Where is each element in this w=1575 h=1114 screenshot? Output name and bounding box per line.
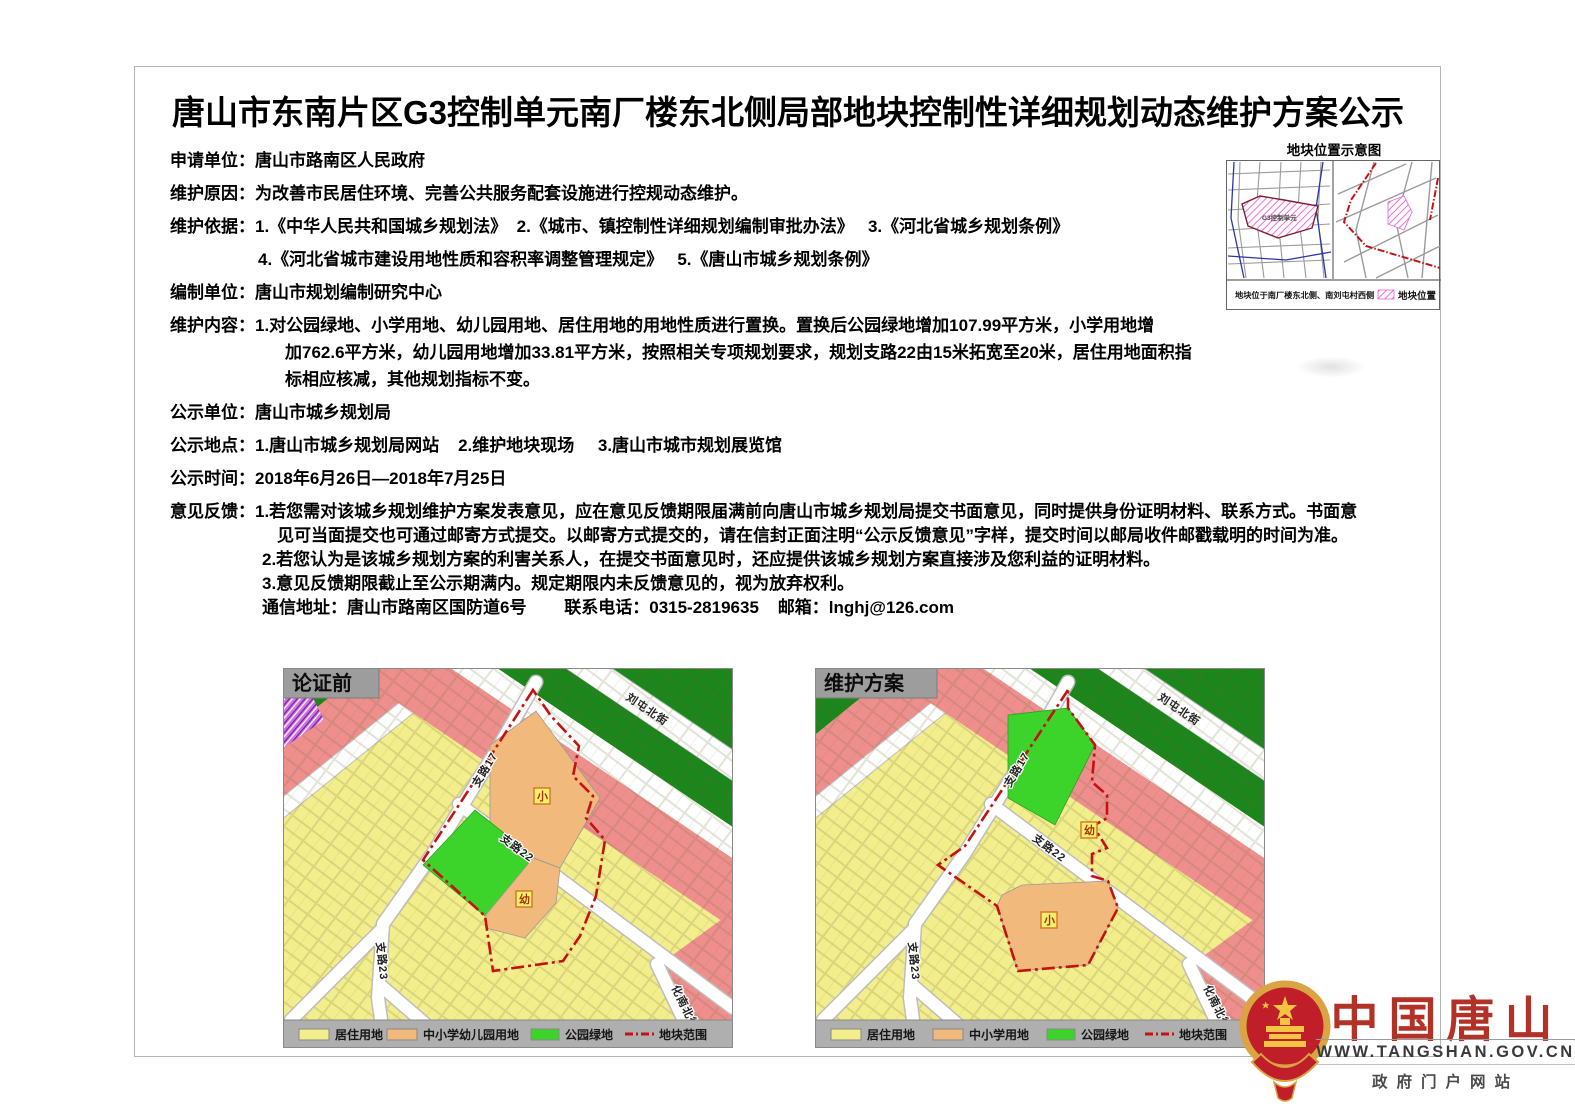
map-title-box: 论证前 (283, 668, 379, 698)
legend-park: 公园绿地 (565, 1027, 613, 1042)
field-value: 唐山市路南区人民政府 (255, 151, 425, 170)
scan-smudge (1296, 356, 1366, 378)
field-value: 3.意见反馈期限截止至公示期满内。规定期限内未反馈意见的，视为放弃权利。 (262, 574, 854, 593)
field-label: 公示单位： (170, 403, 255, 422)
inset-area-label: G3控制单元 (1262, 213, 1297, 222)
notice-line: 2.若您认为是该城乡规划方案的利害关系人，在提交书面意见时，还应提供该城乡规划方… (170, 549, 1440, 571)
map-legend: 居住用地 中小学幼儿园用地 公园绿地 地块范围 (283, 1020, 733, 1048)
public-notice-page: 唐山市东南片区G3控制单元南厂楼东北侧局部地块控制性详细规划动态维护方案公示 申… (0, 0, 1575, 1114)
notice-line: 3.意见反馈期限截止至公示期满内。规定期限内未反馈意见的，视为放弃权利。 (170, 573, 1440, 595)
legend-school: 中小学幼儿园用地 (423, 1027, 519, 1042)
field-label: 编制单位： (170, 283, 255, 302)
field-value: 4.《河北省城市建设用地性质和容积率调整管理规定》 5.《唐山市城乡规划条例》 (258, 250, 879, 269)
notice-line: 加762.6平方米，幼儿园用地增加33.81平方米，按照相关专项规划要求，规划支… (170, 342, 1440, 364)
notice-line: 公示时间：2018年6月26日—2018年7月25日 (170, 468, 1440, 490)
notice-line: 标相应核减，其他规划指标不变。 (170, 369, 1440, 391)
field-value: 1.唐山市城乡规划局网站 2.维护地块现场 3.唐山市城市规划展览馆 (255, 436, 782, 455)
svg-text:幼: 幼 (1084, 823, 1095, 837)
notice-line: 公示单位：唐山市城乡规划局 (170, 402, 1440, 424)
notice-line: 见可当面提交也可通过邮寄方式提交。以邮寄方式提交的，请在信封正面注明“公示反馈意… (170, 525, 1440, 547)
field-label: 意见反馈： (170, 502, 255, 521)
field-label: 公示地点： (170, 436, 255, 455)
zone-label-xiao: 小 (1041, 912, 1057, 928)
legend-boundary: 地块范围 (1179, 1027, 1227, 1042)
page-title: 唐山市东南片区G3控制单元南厂楼东北侧局部地块控制性详细规划动态维护方案公示 (145, 86, 1431, 134)
zone-label-you: 幼 (1081, 822, 1097, 838)
notice-line: 通信地址：唐山市路南区国防道6号 联系电话：0315-2819635 邮箱：ln… (170, 597, 1440, 619)
field-value: 见可当面提交也可通过邮寄方式提交。以邮寄方式提交的，请在信封正面注明“公示反馈意… (277, 526, 1348, 545)
field-label: 维护内容： (170, 316, 255, 335)
notice-line: 公示地点：1.唐山市城乡规划局网站 2.维护地块现场 3.唐山市城市规划展览馆 (170, 435, 1440, 457)
svg-text:论证前: 论证前 (292, 671, 352, 695)
field-value: 通信地址：唐山市路南区国防道6号 联系电话：0315-2819635 邮箱：ln… (262, 598, 954, 617)
notice-line: 意见反馈：1.若您需对该城乡规划维护方案发表意见，应在意见反馈期限届满前向唐山市… (170, 501, 1440, 523)
map-legend: 居住用地 中小学用地 公园绿地 地块范围 (815, 1020, 1265, 1048)
legend-residential: 居住用地 (867, 1027, 915, 1042)
notice-line: 维护内容：1.对公园绿地、小学用地、幼儿园用地、居住用地的用地性质进行置换。置换… (170, 315, 1440, 337)
field-value: 唐山市城乡规划局 (255, 403, 391, 422)
svg-text:幼: 幼 (519, 892, 530, 906)
legend-residential: 居住用地 (335, 1027, 383, 1042)
field-value: 2018年6月26日—2018年7月25日 (255, 469, 506, 488)
legend-school: 中小学用地 (969, 1027, 1029, 1042)
map-before-plan: 刘屯北街 支路17 支路22 支路23 化南北街 小 (283, 668, 733, 1048)
field-value: 1.《中华人民共和国城乡规划法》 2.《城市、镇控制性详细规划编制审批办法》 3… (255, 217, 1069, 236)
zone-label-you: 幼 (516, 891, 532, 907)
zone-label-xiao: 小 (534, 788, 550, 804)
field-label: 维护原因： (170, 184, 255, 203)
field-value: 为改善市民居住环境、完善公共服务配套设施进行控规动态维护。 (255, 184, 748, 203)
field-value: 1.对公园绿地、小学用地、幼儿园用地、居住用地的用地性质进行置换。置换后公园绿地… (255, 316, 1154, 335)
field-label: 申请单位： (170, 151, 255, 170)
location-inset-map: G3控制单元 地块位于南厂楼东北侧、南刘屯村西侧 地块位置 (1226, 160, 1442, 312)
field-value: 唐山市规划编制研究中心 (255, 283, 442, 302)
divider (1316, 1064, 1575, 1065)
inset-caption: 地块位于南厂楼东北侧、南刘屯村西侧 (1235, 290, 1374, 300)
svg-text:小: 小 (1043, 913, 1055, 927)
inset-legend-label: 地块位置 (1398, 290, 1437, 302)
svg-text:维护方案: 维护方案 (824, 671, 905, 695)
inset-legend-swatch (1378, 290, 1394, 299)
svg-text:小: 小 (536, 789, 548, 803)
inset-map-title: 地块位置示意图 (1226, 139, 1442, 159)
divider (1316, 1039, 1575, 1040)
portal-tagline: 政府门户网站 (1316, 1070, 1575, 1092)
field-value: 2.若您认为是该城乡规划方案的利害关系人，在提交书面意见时，还应提供该城乡规划方… (262, 550, 1160, 569)
field-label: 公示时间： (170, 469, 255, 488)
field-value: 标相应核减，其他规划指标不变。 (285, 370, 540, 389)
map-title-box: 维护方案 (815, 668, 937, 698)
site-url: WWW.TANGSHAN.GOV.CN (1316, 1043, 1575, 1062)
legend-park: 公园绿地 (1081, 1027, 1129, 1042)
map-maintenance-plan: 刘屯北街 支路17 支路22 支路23 化南北街 幼 (815, 668, 1265, 1048)
legend-boundary: 地块范围 (659, 1027, 707, 1042)
field-label: 维护依据： (170, 217, 255, 236)
field-value: 1.若您需对该城乡规划维护方案发表意见，应在意见反馈期限届满前向唐山市城乡规划局… (255, 502, 1357, 521)
field-value: 加762.6平方米，幼儿园用地增加33.81平方米，按照相关专项规划要求，规划支… (285, 343, 1192, 362)
